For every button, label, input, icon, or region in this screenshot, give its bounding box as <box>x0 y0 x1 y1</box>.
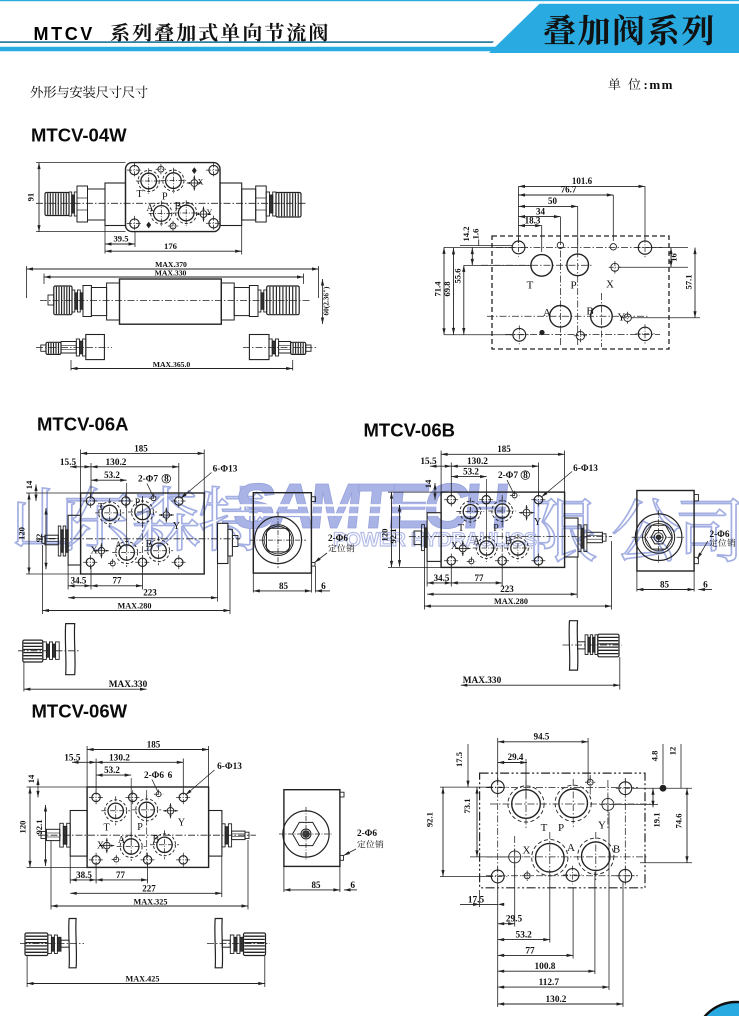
svg-text:38.5: 38.5 <box>76 870 92 880</box>
svg-text:57.1: 57.1 <box>683 274 693 289</box>
svg-text:29.4: 29.4 <box>508 752 524 762</box>
svg-text:55.6: 55.6 <box>452 268 462 284</box>
svg-text:6: 6 <box>321 582 326 592</box>
svg-text:16: 16 <box>669 253 679 262</box>
svg-text:53.2: 53.2 <box>516 931 533 941</box>
svg-text:X: X <box>198 178 204 187</box>
svg-text:MAX.425: MAX.425 <box>126 975 160 984</box>
svg-text:100.8: 100.8 <box>535 962 556 972</box>
svg-text:A: A <box>567 842 575 854</box>
svg-text:53.2: 53.2 <box>463 467 479 477</box>
svg-text:MAX.330: MAX.330 <box>155 268 187 277</box>
svg-text:2-Φ7: 2-Φ7 <box>138 475 158 485</box>
svg-text:MAX.330: MAX.330 <box>463 676 502 686</box>
svg-text:18.3: 18.3 <box>525 215 541 225</box>
svg-text:B: B <box>505 536 512 547</box>
svg-text:53.2: 53.2 <box>104 765 120 775</box>
svg-text:P: P <box>570 280 576 292</box>
svg-text:85: 85 <box>660 580 670 590</box>
svg-text:60(2.36"): 60(2.36") <box>322 286 331 316</box>
svg-text:B: B <box>175 201 182 212</box>
svg-text:223: 223 <box>500 584 514 594</box>
svg-text:P: P <box>137 822 143 833</box>
svg-text:130.2: 130.2 <box>546 995 567 1005</box>
svg-text:MTCV: MTCV <box>34 24 95 44</box>
svg-text:2-Φ6: 2-Φ6 <box>357 829 377 839</box>
svg-text:92.1: 92.1 <box>388 528 398 543</box>
svg-text:92: 92 <box>34 534 44 543</box>
svg-text:17.5: 17.5 <box>468 896 485 906</box>
svg-text:71.4: 71.4 <box>433 281 443 297</box>
svg-text:176: 176 <box>164 241 178 251</box>
svg-text:223: 223 <box>143 588 157 598</box>
svg-text:77: 77 <box>525 946 535 956</box>
svg-text:120: 120 <box>17 527 27 540</box>
svg-text:15.5: 15.5 <box>60 458 77 468</box>
svg-text:12: 12 <box>668 747 678 756</box>
svg-text:P: P <box>493 523 499 534</box>
svg-text:14: 14 <box>26 774 36 783</box>
svg-text:Y: Y <box>178 818 185 829</box>
svg-text:29.5: 29.5 <box>506 915 523 925</box>
svg-text:P: P <box>162 192 168 203</box>
svg-text:MAX.325: MAX.325 <box>134 897 168 906</box>
svg-text:6: 6 <box>350 881 355 891</box>
svg-text:X: X <box>606 279 614 291</box>
svg-text:77: 77 <box>475 573 485 583</box>
svg-text::mm: :mm <box>644 77 675 92</box>
svg-text:15.5: 15.5 <box>64 753 81 763</box>
svg-text:B: B <box>613 844 620 856</box>
svg-text:MAX.280: MAX.280 <box>118 602 152 611</box>
svg-text:Y: Y <box>207 208 213 217</box>
svg-text:Y: Y <box>534 517 541 528</box>
svg-text:69.8: 69.8 <box>442 281 452 297</box>
svg-text:1.6: 1.6 <box>471 228 481 239</box>
svg-text:91: 91 <box>26 193 36 202</box>
svg-text:MTCV-04W: MTCV-04W <box>31 125 127 146</box>
svg-text:120: 120 <box>18 821 28 834</box>
svg-text:6-Φ13: 6-Φ13 <box>573 464 598 474</box>
svg-text:B: B <box>586 306 593 318</box>
svg-text:A: A <box>115 541 123 552</box>
svg-text:T: T <box>541 822 548 834</box>
svg-text:85: 85 <box>312 880 322 890</box>
svg-text:Y: Y <box>618 312 626 324</box>
svg-text:112.7: 112.7 <box>539 978 560 988</box>
svg-text:34.5: 34.5 <box>434 573 450 583</box>
svg-text:6-Φ13: 6-Φ13 <box>217 762 242 772</box>
svg-text:130.2: 130.2 <box>109 753 130 763</box>
svg-text:X: X <box>451 541 459 552</box>
svg-text:92.1: 92.1 <box>34 819 44 834</box>
svg-text:MAX.365.0: MAX.365.0 <box>153 360 191 369</box>
svg-text:2-Φ7: 2-Φ7 <box>498 471 518 481</box>
svg-text:185: 185 <box>134 443 148 453</box>
svg-text:6: 6 <box>168 771 173 781</box>
svg-text:77: 77 <box>116 870 126 880</box>
svg-text:14: 14 <box>24 480 34 489</box>
svg-text:X: X <box>90 546 98 557</box>
svg-text:50: 50 <box>548 196 558 206</box>
svg-text:T: T <box>98 502 104 513</box>
svg-text:MTCV-06B: MTCV-06B <box>364 420 456 441</box>
svg-text:77: 77 <box>113 576 123 586</box>
svg-text:14.2: 14.2 <box>461 226 471 241</box>
svg-text:94.5: 94.5 <box>534 732 550 742</box>
svg-text:2-Φ6: 2-Φ6 <box>328 534 348 544</box>
svg-text:Y: Y <box>598 820 606 832</box>
svg-text:T: T <box>103 823 109 834</box>
svg-text:73.1: 73.1 <box>462 798 472 813</box>
svg-text:4.8: 4.8 <box>650 750 660 761</box>
svg-text:17.5: 17.5 <box>454 752 464 767</box>
svg-text:B: B <box>153 835 160 846</box>
svg-text:MAX.330: MAX.330 <box>109 680 148 690</box>
svg-text:B: B <box>146 539 153 550</box>
svg-text:130.2: 130.2 <box>106 458 127 468</box>
svg-text:T: T <box>527 280 534 292</box>
svg-text:6-Φ13: 6-Φ13 <box>213 465 238 475</box>
svg-text:A: A <box>543 307 551 319</box>
svg-text:2-Φ6: 2-Φ6 <box>144 771 164 781</box>
svg-text:P: P <box>558 822 564 834</box>
svg-text:T: T <box>136 189 142 200</box>
svg-text:MTCV-06A: MTCV-06A <box>37 414 129 435</box>
svg-text:MTCV-06W: MTCV-06W <box>32 701 128 722</box>
svg-text:34.5: 34.5 <box>71 576 87 586</box>
svg-text:15.5: 15.5 <box>420 457 437 467</box>
svg-text:19.1: 19.1 <box>652 812 662 827</box>
svg-text:A: A <box>118 835 126 846</box>
svg-text:P: P <box>135 498 141 509</box>
svg-text:Y: Y <box>173 521 180 532</box>
svg-text:74.6: 74.6 <box>674 813 684 829</box>
svg-text:185: 185 <box>147 739 161 749</box>
svg-text:53.2: 53.2 <box>104 470 120 480</box>
svg-text:6: 6 <box>703 580 708 590</box>
svg-text:2-Φ6: 2-Φ6 <box>709 530 729 540</box>
svg-text:14: 14 <box>423 479 433 488</box>
svg-text:227: 227 <box>142 883 156 893</box>
svg-text:76.7: 76.7 <box>561 185 577 195</box>
svg-text:185: 185 <box>497 444 511 454</box>
svg-text:39.5: 39.5 <box>113 234 128 244</box>
svg-text:MAX.280: MAX.280 <box>494 597 528 606</box>
svg-text:A: A <box>473 537 481 548</box>
svg-text:92.1: 92.1 <box>425 812 435 827</box>
svg-text:85: 85 <box>279 581 289 591</box>
svg-text:X: X <box>97 841 105 852</box>
svg-text:T: T <box>458 523 464 534</box>
svg-text:A: A <box>146 203 154 214</box>
svg-text:X: X <box>523 845 531 857</box>
